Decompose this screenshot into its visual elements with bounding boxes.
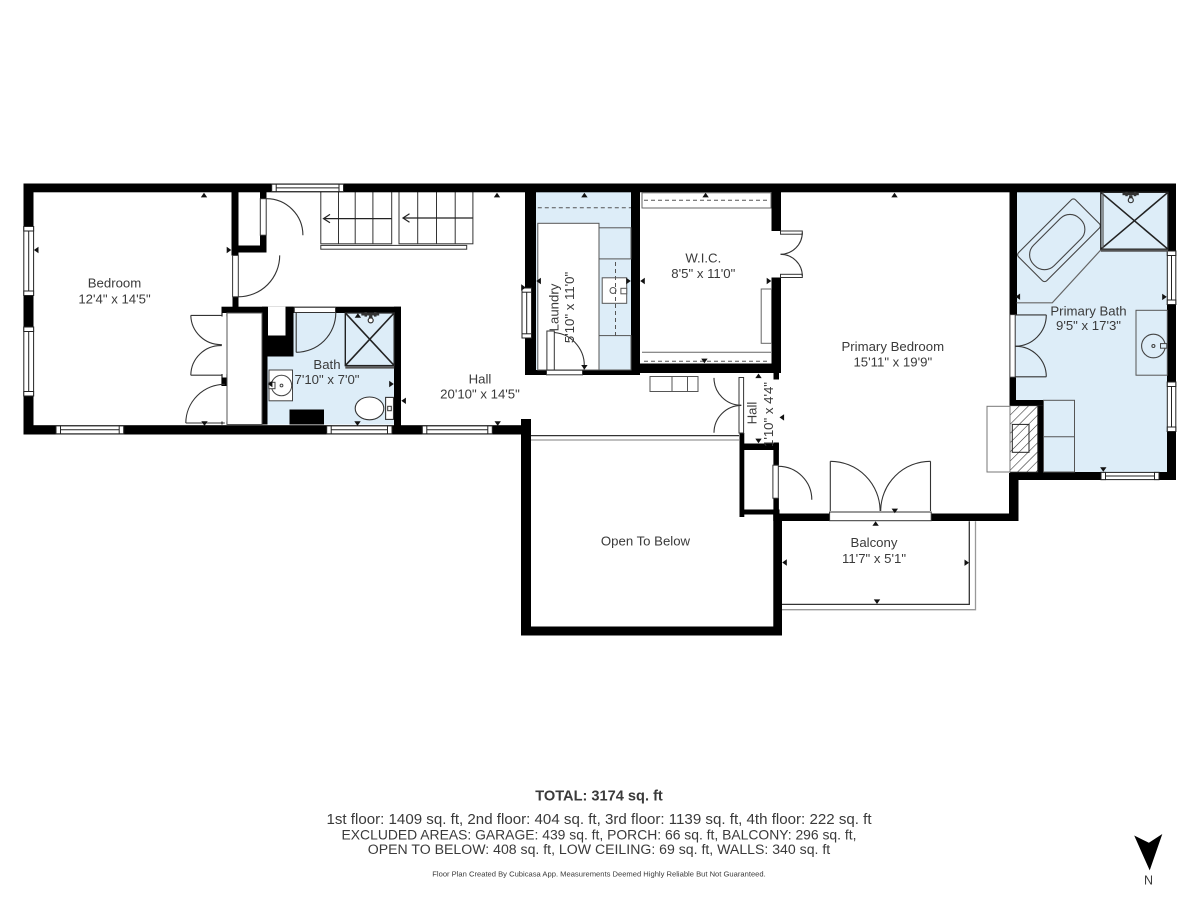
svg-text:8'5" x 11'0": 8'5" x 11'0" (671, 266, 735, 281)
svg-text:N: N (1144, 874, 1153, 888)
svg-text:Open To Below: Open To Below (601, 534, 691, 549)
svg-text:9'5" x 17'3": 9'5" x 17'3" (1056, 318, 1121, 333)
svg-text:15'11" x 19'9": 15'11" x 19'9" (853, 355, 932, 370)
svg-text:1'10" x 4'4": 1'10" x 4'4" (761, 382, 776, 447)
svg-text:12'4" x 14'5": 12'4" x 14'5" (78, 292, 151, 307)
svg-text:7'10" x 7'0": 7'10" x 7'0" (295, 372, 360, 387)
svg-text:Hall: Hall (469, 372, 492, 387)
svg-text:Balcony: Balcony (851, 535, 898, 550)
svg-text:1st floor: 1409 sq. ft, 2nd fl: 1st floor: 1409 sq. ft, 2nd floor: 404 s… (326, 811, 872, 828)
svg-text:OPEN TO BELOW: 408 sq. ft, LOW: OPEN TO BELOW: 408 sq. ft, LOW CEILING: … (368, 841, 830, 857)
svg-text:Bedroom: Bedroom (88, 276, 142, 291)
svg-text:Hall: Hall (745, 402, 760, 425)
svg-text:Floor Plan Created By Cubicasa: Floor Plan Created By Cubicasa App. Meas… (432, 870, 765, 879)
svg-text:Primary Bath: Primary Bath (1050, 304, 1126, 319)
svg-text:Bath: Bath (313, 357, 340, 372)
svg-text:Primary Bedroom: Primary Bedroom (841, 339, 944, 354)
svg-text:5'10" x 11'0": 5'10" x 11'0" (562, 272, 577, 344)
svg-text:W.I.C.: W.I.C. (685, 251, 721, 266)
svg-text:20'10" x 14'5": 20'10" x 14'5" (440, 387, 520, 402)
svg-text:Laundry: Laundry (547, 283, 562, 331)
svg-text:11'7" x 5'1": 11'7" x 5'1" (842, 551, 906, 566)
svg-text:TOTAL: 3174 sq. ft: TOTAL: 3174 sq. ft (535, 789, 663, 805)
